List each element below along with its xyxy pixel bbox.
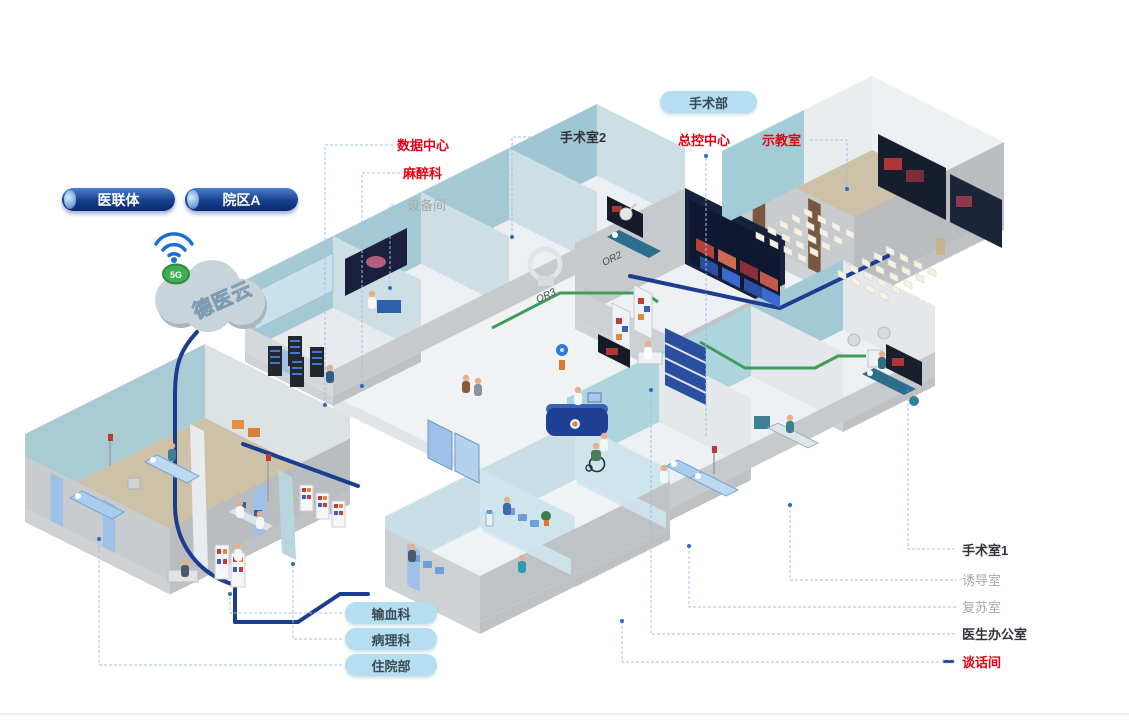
- person-body: [408, 550, 416, 562]
- person-body: [368, 297, 376, 309]
- blood-item: [217, 549, 221, 554]
- inpatient-dept-pill: 住院部: [345, 654, 437, 676]
- callout-master-control: 总控中心: [678, 133, 730, 148]
- nurse-with-wheelchair: [600, 433, 608, 451]
- leader-data-center-dot: [323, 403, 327, 407]
- server-rack-led: [292, 373, 302, 375]
- person-head: [463, 375, 469, 381]
- recovery-pillow-1: [671, 461, 677, 467]
- svg-text:5G: 5G: [170, 270, 182, 280]
- blood-item: [217, 559, 221, 564]
- server-rack-led: [290, 346, 300, 348]
- person-head: [182, 559, 188, 565]
- waiting-standing-woman: [518, 555, 526, 573]
- blood-bag: [334, 504, 338, 508]
- blood-bag: [307, 488, 311, 492]
- server-rack-led: [292, 361, 302, 363]
- or1-surgical-light-2: [878, 327, 890, 339]
- classroom-seat: [916, 273, 924, 283]
- server-rack-led: [312, 357, 322, 359]
- or1-surgeon: [878, 351, 886, 369]
- person-head: [327, 365, 333, 371]
- server-rack-led: [270, 362, 280, 364]
- leader-or1-dot: [906, 386, 910, 390]
- blood-bag: [318, 496, 322, 500]
- reception-logo-dot: [573, 422, 578, 427]
- leader-induction: [790, 505, 956, 580]
- waiting-chair-4: [423, 561, 432, 568]
- blood-bag-cabinet-2: [332, 501, 345, 527]
- ward-wall-cabinet-1: [232, 420, 244, 429]
- cloud-icon: 德医云 5G: [136, 246, 280, 342]
- person-head: [575, 387, 581, 393]
- waiting-seated-1: [503, 497, 511, 515]
- person-body: [518, 561, 526, 573]
- person-head: [601, 433, 607, 439]
- person-body: [503, 503, 511, 515]
- or1-screen-image: [892, 358, 904, 366]
- callout-induction-room: 诱导室: [962, 573, 1001, 588]
- leader-talk-room: [622, 621, 940, 662]
- waiting-chair-5: [435, 567, 444, 574]
- leader-recovery-dot: [687, 544, 691, 548]
- classroom-seat: [904, 279, 912, 289]
- classroom-seat: [928, 267, 936, 277]
- poster-item-0: [616, 318, 622, 324]
- classroom-podium: [936, 238, 945, 255]
- pathology-worker-2: [256, 511, 264, 529]
- leader-doctor-office-dot: [649, 388, 653, 392]
- wifi-antenna-dot: [560, 348, 564, 352]
- surgery-dept-pill: 手术部: [660, 91, 757, 113]
- server-rack-led: [270, 356, 280, 358]
- leader-or1: [908, 388, 956, 549]
- anesthesia-doctor: [368, 291, 376, 309]
- person-head: [257, 511, 263, 517]
- consortium-pill[interactable]: 医联体: [62, 188, 175, 211]
- classroom-screen-image-2: [906, 170, 924, 182]
- cloud-5g-badge: 5G: [163, 265, 189, 284]
- pathology-dept-pill: 病理科: [345, 628, 437, 650]
- anesthesia-screen-image: [366, 256, 386, 268]
- person-head: [661, 465, 667, 471]
- ward-iv-bag: [108, 434, 113, 441]
- waiting-chair-1: [518, 514, 527, 521]
- induction-cabinet: [754, 416, 770, 429]
- iv-bag: [712, 446, 717, 453]
- callout-or2: 手术室2: [560, 130, 606, 145]
- callout-or1: 手术室1: [962, 543, 1008, 558]
- or1-surgical-light-1: [848, 334, 860, 346]
- water-cooler-bottle: [487, 510, 492, 514]
- server-rack-led: [290, 340, 300, 342]
- person-head: [879, 351, 885, 357]
- person-head: [787, 415, 793, 421]
- surgery-dept-pill-label: 手术部: [689, 93, 728, 112]
- waiting-plant: [541, 511, 551, 521]
- c-arm-base: [538, 276, 554, 286]
- server-rack-led: [312, 363, 322, 365]
- person-body: [644, 347, 652, 359]
- anesthesia-workstation: [377, 300, 401, 313]
- person-body: [234, 549, 242, 561]
- callout-recovery-room: 复苏室: [962, 600, 1001, 615]
- callout-demo-room: 示教室: [762, 133, 801, 148]
- ward-pillow-2: [150, 457, 156, 463]
- pathology-worker-1: [236, 500, 244, 518]
- poster-item-4: [644, 306, 650, 312]
- leader-pathology-dot: [291, 562, 295, 566]
- poster-item-3: [638, 298, 644, 304]
- ward-pillow-1: [75, 493, 81, 499]
- person-head: [409, 544, 415, 550]
- blood-bag: [318, 503, 322, 507]
- or1-pillow: [867, 370, 873, 376]
- campus-a-pill[interactable]: 院区A: [185, 188, 298, 211]
- talk-room-dash: [943, 660, 954, 663]
- poster-item-2: [616, 334, 622, 340]
- person-head: [519, 555, 525, 561]
- leader-talk-room-dot: [620, 619, 624, 623]
- classroom-screen-image-1: [884, 158, 902, 170]
- blood-bag: [339, 511, 343, 515]
- blood-item: [239, 567, 243, 572]
- server-technician: [326, 365, 334, 383]
- leader-blood-dot: [228, 592, 232, 596]
- person-body: [256, 517, 264, 529]
- hospital-isometric-diagram: OR3 OR2 德医云 5G 医联体 院区A 手术部 输血科 病理科: [0, 0, 1129, 721]
- blood-bag: [323, 496, 327, 500]
- blood-bag: [302, 488, 306, 492]
- person-body: [326, 371, 334, 383]
- pathology-iv-bag: [266, 454, 271, 461]
- server-rack-led: [292, 367, 302, 369]
- person-head: [504, 497, 510, 503]
- person-body: [474, 384, 482, 396]
- reception-monitor: [588, 393, 601, 402]
- waiting-seated-2: [408, 544, 416, 562]
- ward-building-front-left-wall-door-0: [51, 473, 64, 527]
- blood-bag-cabinet-1: [316, 493, 329, 519]
- or1-stool: [909, 396, 919, 406]
- callout-anesthesia: 麻醉科: [403, 166, 442, 181]
- control-hall-screen-image: [606, 348, 618, 355]
- blood-item: [223, 549, 227, 554]
- classroom-screen-image-3: [956, 196, 972, 207]
- blood-bag: [307, 495, 311, 499]
- blood-bank-worker: [234, 543, 242, 561]
- callout-equipment-room: 设备间: [407, 198, 446, 213]
- or2-pillow: [612, 232, 618, 238]
- antenna-pot: [559, 360, 565, 370]
- blood-desk-worker: [181, 559, 189, 577]
- blood-item: [223, 559, 227, 564]
- person-body: [660, 471, 668, 483]
- person-head: [237, 500, 243, 506]
- induction-nurse: [786, 415, 794, 433]
- person-body: [600, 439, 608, 451]
- leader-equipment-dot: [388, 286, 392, 290]
- server-rack-led: [270, 350, 280, 352]
- callout-talk-room: 谈话间: [962, 655, 1001, 670]
- leader-demo-room-dot: [845, 187, 849, 191]
- blood-dept-pill: 输血科: [345, 602, 437, 624]
- person-head: [235, 543, 241, 549]
- person-head: [475, 378, 481, 384]
- person-body: [236, 506, 244, 518]
- patient-body: [591, 450, 601, 461]
- person-body: [878, 357, 886, 369]
- bottom-divider: [0, 713, 1129, 715]
- waiting-chair-2: [530, 520, 539, 527]
- leader-or2-dot: [510, 235, 514, 239]
- blood-bag: [323, 503, 327, 507]
- recovery-pillow-2: [695, 473, 701, 479]
- person-head: [369, 291, 375, 297]
- ward-nurse: [168, 443, 176, 461]
- person-body: [574, 393, 582, 405]
- waiting-plant-pot: [544, 520, 549, 526]
- person-head: [169, 443, 175, 449]
- water-cooler: [486, 512, 493, 526]
- poster-item-1: [622, 326, 628, 332]
- or2-surgical-light: [620, 208, 632, 220]
- leader-inpatient-dot: [97, 537, 101, 541]
- control-operator: [644, 341, 652, 359]
- blood-bag: [302, 495, 306, 499]
- blood-bag: [339, 504, 343, 508]
- leader-anesthesia-dot: [360, 384, 364, 388]
- person-body: [462, 381, 470, 393]
- blood-bag-cabinet-0: [300, 485, 313, 511]
- inpatient-dept-pill-label: 住院部: [371, 656, 410, 675]
- person-body: [786, 421, 794, 433]
- campus-a-pill-label: 院区A: [222, 190, 260, 210]
- ward-wall-cabinet-2: [248, 428, 260, 437]
- callout-data-center: 数据中心: [397, 138, 449, 153]
- recovery-doctor: [660, 465, 668, 483]
- blood-dept-pill-label: 输血科: [371, 604, 410, 623]
- pathology-dept-pill-label: 病理科: [371, 630, 410, 649]
- server-rack-led: [312, 351, 322, 353]
- hallway-visitor-1: [462, 375, 470, 393]
- callout-doctor-office: 医生办公室: [962, 627, 1027, 642]
- consortium-pill-label: 医联体: [98, 190, 140, 210]
- leader-recovery: [689, 546, 956, 607]
- blood-bag: [334, 511, 338, 515]
- ward-nightstand: [128, 478, 140, 489]
- server-rack-led: [290, 352, 300, 354]
- person-head: [645, 341, 651, 347]
- person-body: [168, 449, 176, 461]
- leader-induction-dot: [788, 503, 792, 507]
- isometric-scene: OR3 OR2: [0, 0, 1129, 721]
- leader-pathology: [293, 564, 342, 639]
- person-body: [181, 565, 189, 577]
- patient-head: [593, 443, 599, 449]
- poster-item-5: [638, 314, 644, 320]
- blood-item: [233, 567, 237, 572]
- leader-master-control-dot: [704, 154, 708, 158]
- hallway-visitor-2: [474, 378, 482, 396]
- receptionist: [574, 387, 582, 405]
